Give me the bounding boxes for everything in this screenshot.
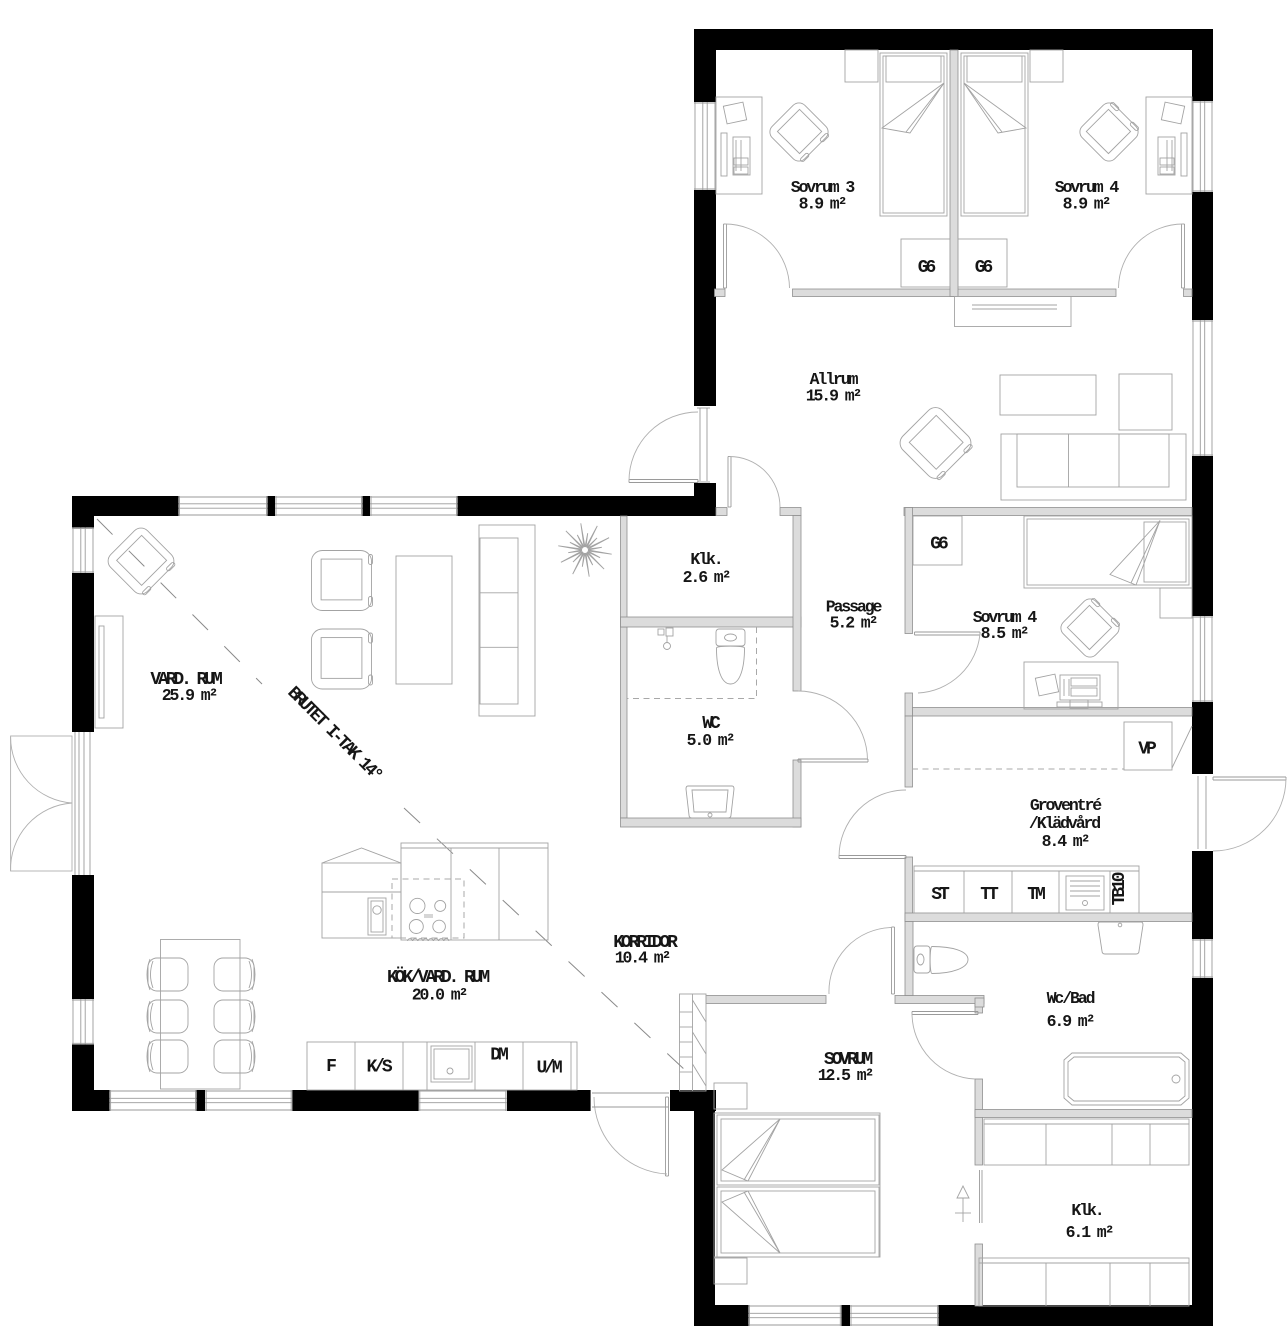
svg-text:10.4 m²: 10.4 m² bbox=[615, 949, 670, 968]
svg-text:12.5 m²: 12.5 m² bbox=[818, 1066, 873, 1085]
svg-text:Klk.: Klk. bbox=[1071, 1201, 1102, 1220]
svg-text:5.2 m²: 5.2 m² bbox=[830, 614, 877, 633]
svg-text:G6: G6 bbox=[918, 258, 936, 278]
svg-text:Klk.: Klk. bbox=[690, 550, 721, 569]
svg-text:6.9 m²: 6.9 m² bbox=[1047, 1012, 1094, 1031]
svg-text:6.1 m²: 6.1 m² bbox=[1066, 1223, 1113, 1242]
svg-text:Wc/Bad: Wc/Bad bbox=[1047, 989, 1095, 1008]
svg-text:15.9 m²: 15.9 m² bbox=[806, 387, 861, 406]
svg-text:K/S: K/S bbox=[366, 1058, 392, 1078]
svg-text:Groventré: Groventré bbox=[1030, 796, 1102, 815]
svg-text:5.0 m²: 5.0 m² bbox=[687, 731, 734, 750]
svg-text:25.9 m²: 25.9 m² bbox=[162, 686, 217, 705]
svg-text:8.4 m²: 8.4 m² bbox=[1042, 832, 1089, 851]
svg-text:8.9 m²: 8.9 m² bbox=[1063, 195, 1110, 214]
svg-text:/Klädvård: /Klädvård bbox=[1029, 814, 1100, 833]
svg-text:20.0 m²: 20.0 m² bbox=[412, 986, 467, 1005]
svg-text:G6: G6 bbox=[930, 535, 948, 555]
svg-text:TM: TM bbox=[1027, 885, 1045, 905]
svg-text:TB10: TB10 bbox=[1110, 872, 1130, 905]
svg-text:2.6 m²: 2.6 m² bbox=[683, 568, 730, 587]
svg-text:U/M: U/M bbox=[536, 1059, 561, 1079]
svg-text:8.5 m²: 8.5 m² bbox=[981, 624, 1028, 643]
svg-text:8.9 m²: 8.9 m² bbox=[799, 195, 846, 214]
svg-text:G6: G6 bbox=[975, 258, 993, 278]
svg-text:DM: DM bbox=[490, 1046, 508, 1066]
